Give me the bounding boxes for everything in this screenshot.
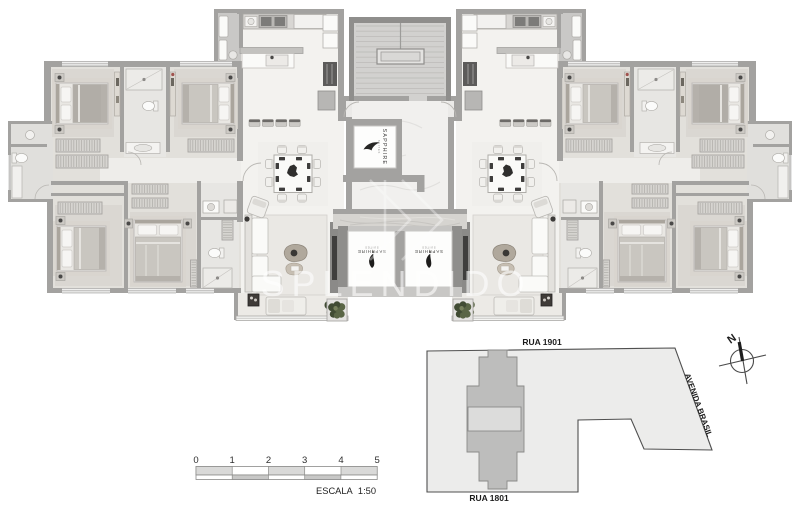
svg-text:SAPPHIRE: SAPPHIRE — [381, 129, 387, 166]
svg-text:SAPPHIRE: SAPPHIRE — [414, 249, 443, 254]
svg-text:RUA 1901: RUA 1901 — [522, 337, 562, 347]
svg-text:3: 3 — [302, 455, 307, 466]
svg-text:0: 0 — [193, 455, 198, 466]
svg-text:5: 5 — [375, 455, 380, 466]
svg-text:IMÓVEIS: IMÓVEIS — [352, 309, 438, 328]
svg-text:ESCALA 1:50: ESCALA 1:50 — [316, 486, 376, 496]
svg-text:1: 1 — [230, 455, 235, 466]
svg-text:SPLENDIDO: SPLENDIDO — [260, 263, 531, 304]
svg-text:RUA 1801: RUA 1801 — [469, 493, 509, 503]
svg-text:SUITES: SUITES — [377, 140, 381, 154]
svg-text:SUITES: SUITES — [364, 246, 378, 250]
svg-text:SUITES: SUITES — [421, 246, 435, 250]
svg-text:4: 4 — [338, 455, 343, 466]
svg-text:2: 2 — [266, 455, 271, 466]
